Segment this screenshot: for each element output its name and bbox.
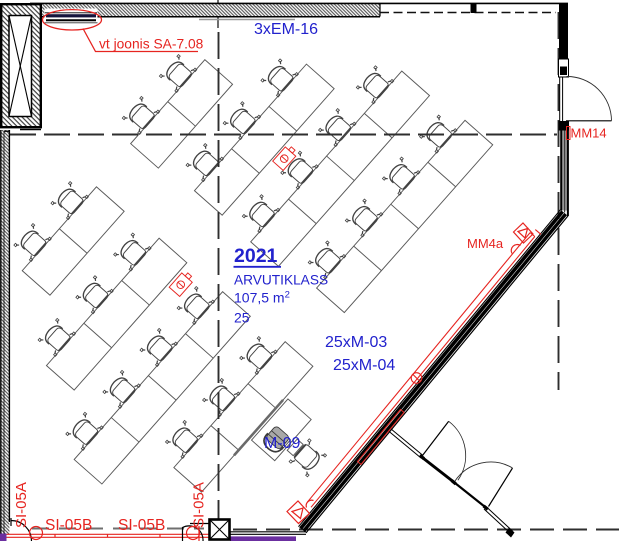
svg-text:ARVUTIKLASS: ARVUTIKLASS [234,273,328,288]
svg-text:SI-05B: SI-05B [45,517,92,534]
svg-text:SI-05B: SI-05B [118,517,165,534]
svg-text:25xM-03: 25xM-03 [325,334,387,351]
svg-text:MM4a: MM4a [467,236,504,251]
svg-text:SI-05A: SI-05A [13,482,30,528]
svg-text:2021: 2021 [234,245,278,267]
svg-text:M-09: M-09 [264,435,301,452]
svg-text:vt joonis SA-7.08: vt joonis SA-7.08 [99,37,204,52]
svg-text:MM14: MM14 [571,126,607,141]
svg-text:107,5 m2: 107,5 m2 [234,290,290,306]
svg-text:25xM-04: 25xM-04 [333,357,395,374]
svg-text:SI-05A: SI-05A [191,482,208,528]
svg-text:25: 25 [234,310,250,326]
svg-text:3xEM-16: 3xEM-16 [254,21,318,38]
